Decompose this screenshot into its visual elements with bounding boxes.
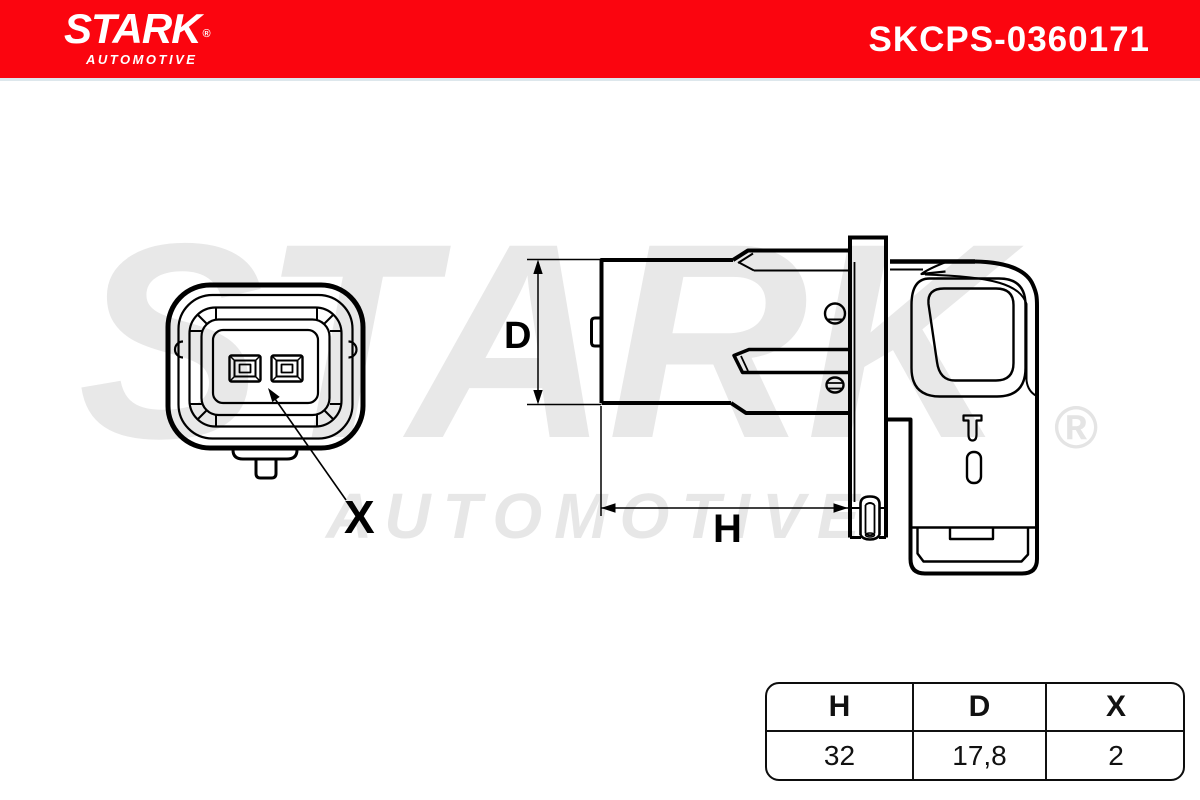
front-view-connector [168, 285, 363, 478]
table-header-d: D [914, 684, 1047, 732]
table-value-h: 32 [767, 732, 914, 779]
sensor-head [888, 262, 1038, 574]
mounting-flange [848, 238, 888, 540]
dimension-d [527, 260, 601, 405]
pin-terminal [230, 356, 261, 382]
dimension-table: H D X 32 17,8 2 [765, 682, 1185, 781]
x-dimension-label: X [344, 491, 375, 543]
brand-logo: STARK® AUTOMOTIVE [64, 8, 211, 66]
h-dimension-label: H [713, 507, 742, 551]
dimension-h [601, 406, 848, 516]
table-value-d: 17,8 [914, 732, 1047, 779]
header-bar: STARK® AUTOMOTIVE SKCPS-0360171 [0, 0, 1200, 81]
side-view-sensor: D H [504, 238, 1037, 574]
table-header-x: X [1047, 684, 1185, 732]
part-number: SKCPS-0360171 [869, 22, 1151, 57]
d-dimension-label: D [504, 315, 531, 357]
table-value-x: 2 [1047, 732, 1185, 779]
table-header-h: H [767, 684, 914, 732]
brand-name: STARK [64, 5, 201, 52]
technical-drawing: X D H [0, 0, 1200, 800]
registered-trademark-icon: ® [203, 28, 211, 40]
pin-terminal [272, 356, 303, 382]
brand-subtitle: AUTOMOTIVE [86, 53, 211, 66]
